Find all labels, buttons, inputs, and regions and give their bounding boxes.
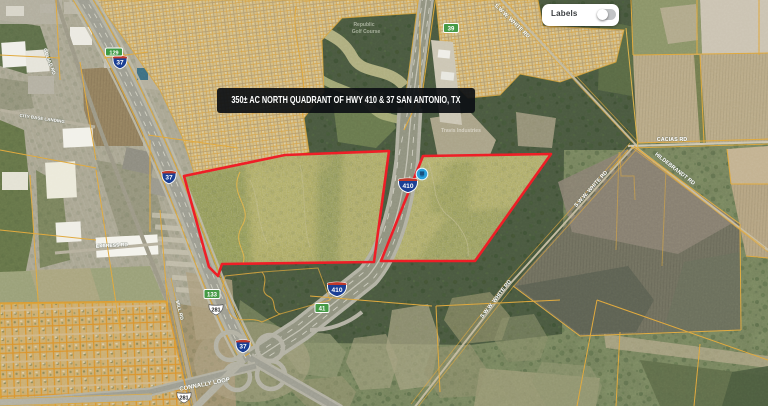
- svg-text:281: 281: [179, 395, 188, 401]
- svg-text:37: 37: [239, 344, 247, 351]
- svg-text:281: 281: [211, 307, 220, 313]
- svg-text:129: 129: [109, 50, 118, 56]
- svg-text:37: 37: [116, 60, 124, 67]
- svg-text:39: 39: [448, 27, 455, 33]
- svg-text:CACIAS RD: CACIAS RD: [657, 137, 688, 143]
- svg-text:Golf Course: Golf Course: [352, 29, 381, 35]
- svg-text:Republic: Republic: [353, 22, 374, 28]
- svg-text:410: 410: [402, 183, 413, 190]
- svg-text:133: 133: [207, 293, 218, 299]
- svg-text:Travis Industries: Travis Industries: [441, 128, 481, 134]
- svg-text:410: 410: [331, 287, 342, 294]
- svg-text:41: 41: [319, 307, 326, 313]
- svg-text:37: 37: [165, 175, 173, 182]
